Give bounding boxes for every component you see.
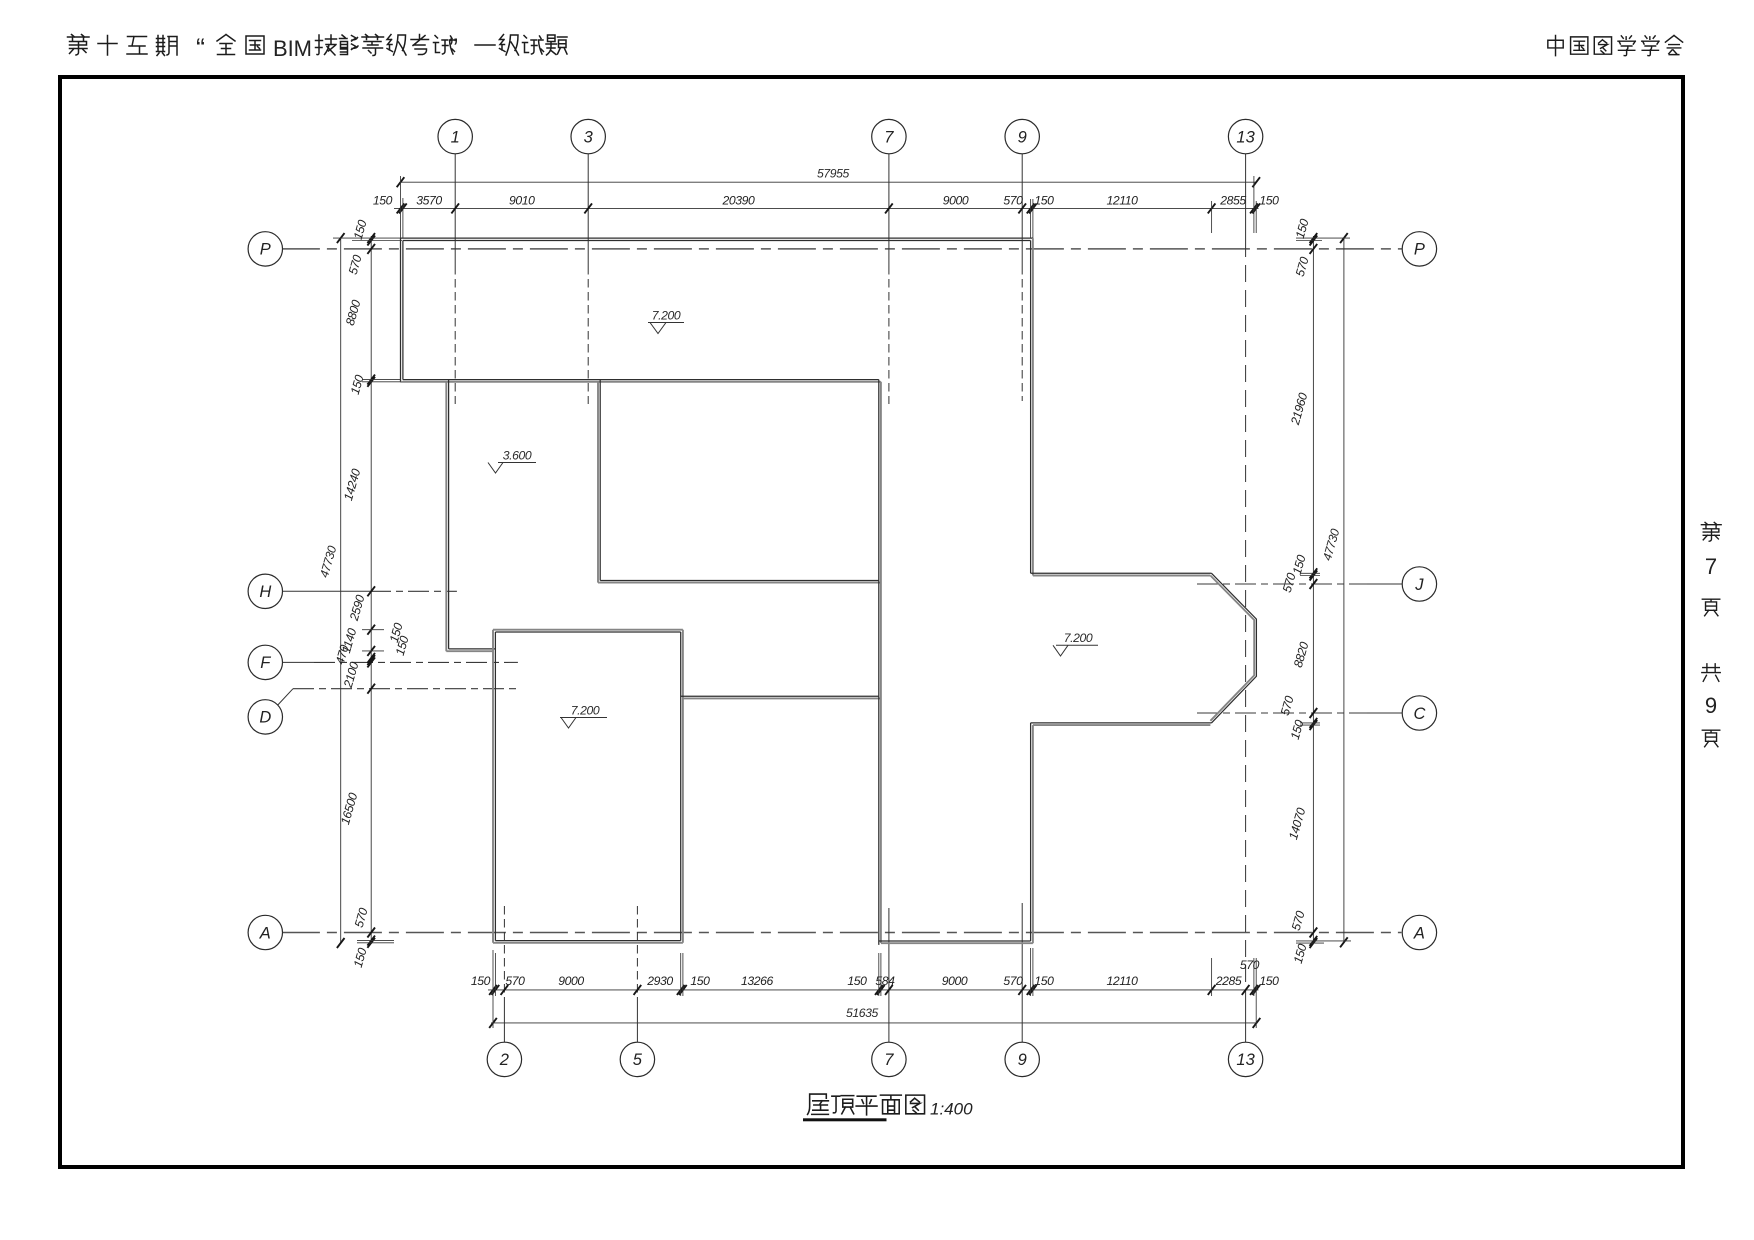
svg-text:1: 1 (451, 128, 460, 146)
svg-text:57955: 57955 (817, 167, 850, 181)
svg-text:2930: 2930 (646, 974, 673, 988)
svg-text:3: 3 (584, 128, 594, 146)
svg-text:150: 150 (847, 974, 867, 988)
svg-text:A: A (1413, 924, 1425, 942)
svg-text:12110: 12110 (1107, 974, 1139, 988)
svg-text:150: 150 (373, 194, 393, 208)
svg-text:13266: 13266 (741, 974, 774, 988)
svg-text:P: P (260, 241, 271, 259)
svg-text:7: 7 (1705, 554, 1717, 579)
svg-text:12110: 12110 (1107, 194, 1139, 208)
svg-text:7.200: 7.200 (1064, 631, 1093, 645)
svg-text:150: 150 (1034, 974, 1054, 988)
svg-text:9000: 9000 (943, 194, 969, 208)
svg-text:150: 150 (690, 974, 710, 988)
svg-text:13: 13 (1236, 128, 1255, 146)
svg-text:9000: 9000 (942, 974, 968, 988)
svg-text:2855: 2855 (1219, 194, 1246, 208)
svg-text:H: H (259, 583, 271, 601)
svg-text:51635: 51635 (846, 1006, 879, 1020)
svg-text:C: C (1413, 705, 1425, 723)
svg-text:570: 570 (1003, 974, 1023, 988)
svg-text:7: 7 (884, 1051, 894, 1069)
svg-text:570: 570 (1003, 194, 1023, 208)
svg-text:9010: 9010 (509, 194, 535, 208)
svg-text:7.200: 7.200 (571, 704, 600, 718)
svg-text:570: 570 (1240, 958, 1260, 972)
svg-text:150: 150 (1259, 974, 1279, 988)
svg-text:BIM: BIM (273, 36, 312, 61)
svg-text:9: 9 (1705, 693, 1717, 718)
svg-text:3.600: 3.600 (503, 449, 532, 463)
svg-text:“: “ (196, 33, 205, 63)
svg-text:150: 150 (1034, 194, 1054, 208)
svg-text:570: 570 (505, 974, 525, 988)
svg-text:7: 7 (884, 128, 894, 146)
svg-text:A: A (259, 924, 271, 942)
svg-text:2: 2 (499, 1051, 509, 1069)
svg-text:2285: 2285 (1215, 974, 1242, 988)
svg-text:13: 13 (1236, 1051, 1255, 1069)
svg-text:9: 9 (1018, 128, 1027, 146)
svg-text:F: F (260, 654, 271, 672)
svg-text:20390: 20390 (722, 194, 756, 208)
svg-text:J: J (1414, 576, 1424, 594)
svg-text:5: 5 (633, 1051, 643, 1069)
svg-text:7.200: 7.200 (652, 309, 681, 323)
svg-text:150: 150 (471, 974, 491, 988)
svg-text:D: D (259, 709, 271, 727)
svg-text:150: 150 (1259, 194, 1279, 208)
svg-text:3570: 3570 (416, 194, 442, 208)
svg-text:”: ” (449, 33, 458, 63)
svg-text:9: 9 (1018, 1051, 1027, 1069)
svg-text:P: P (1414, 241, 1425, 259)
svg-text:1:400: 1:400 (930, 1100, 973, 1119)
svg-text:9000: 9000 (558, 974, 584, 988)
